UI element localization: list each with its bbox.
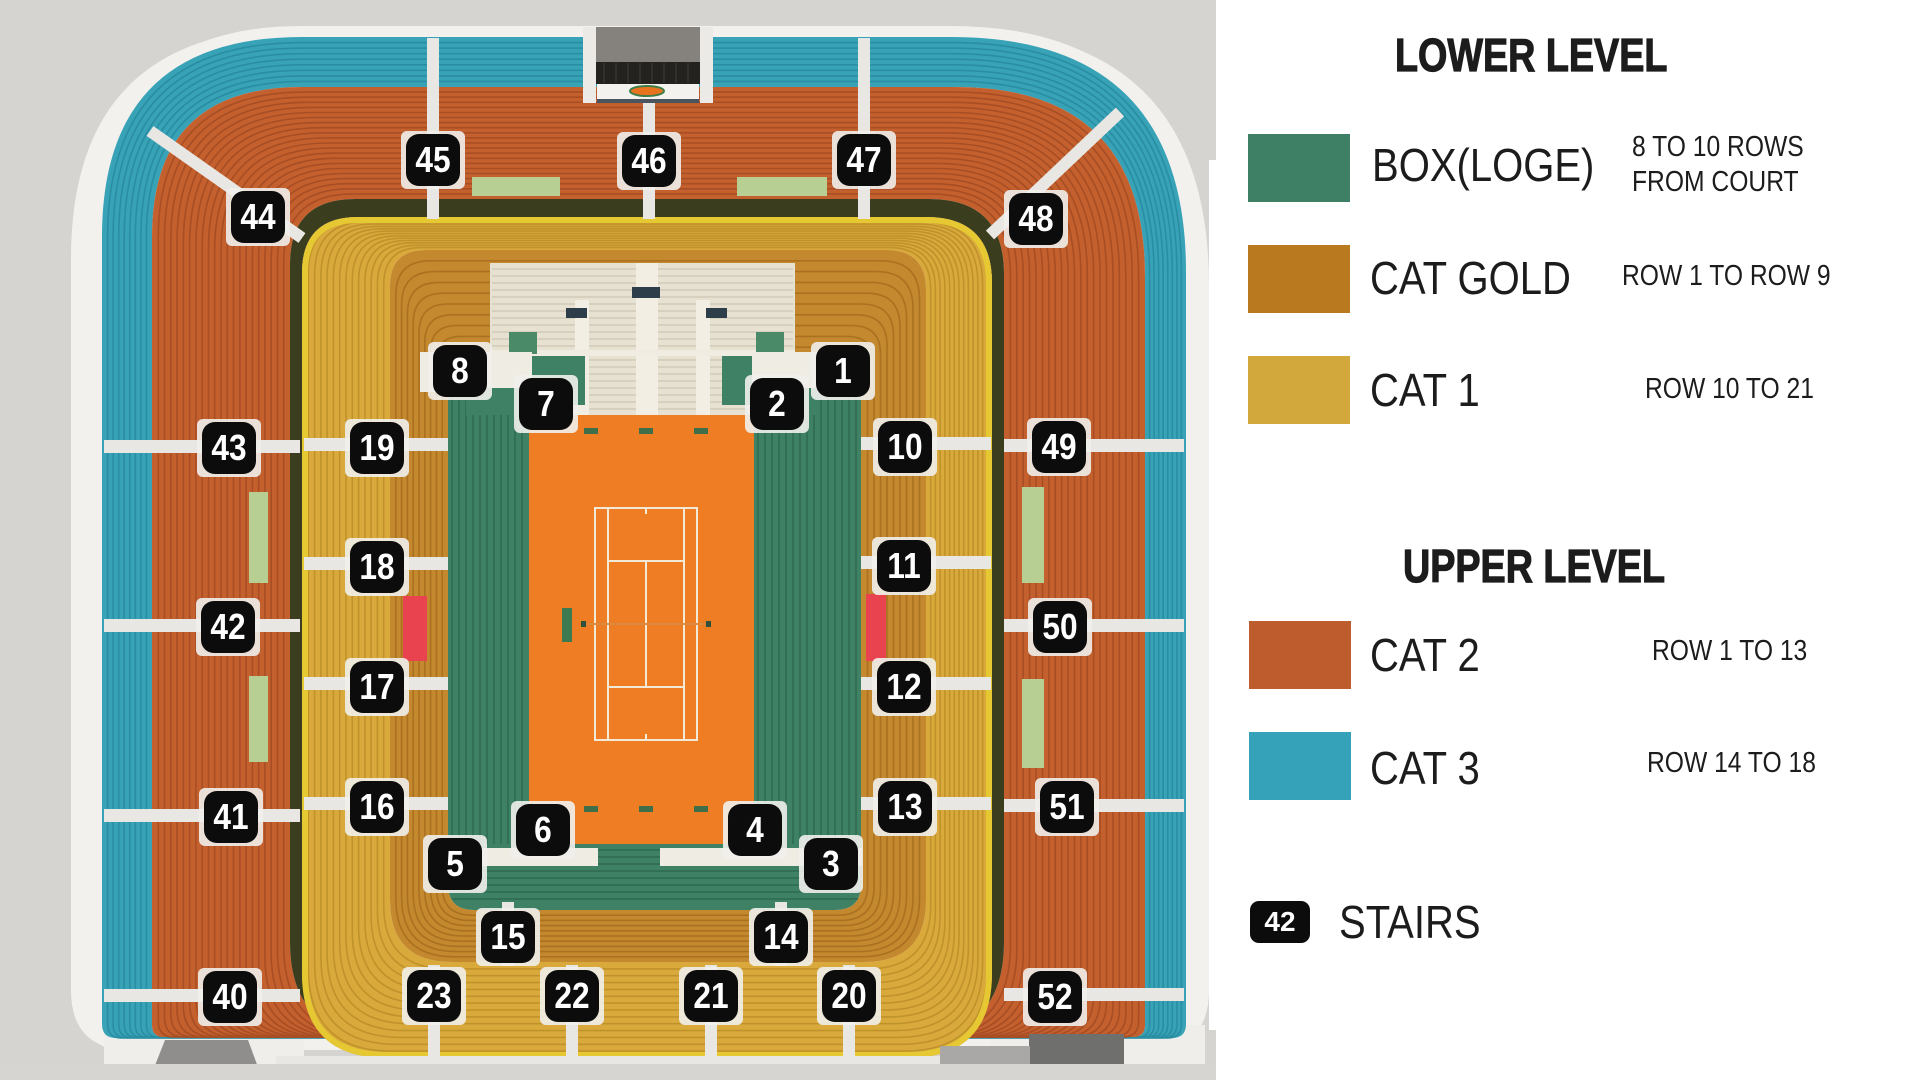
svg-text:48: 48 xyxy=(1018,199,1053,239)
svg-text:5: 5 xyxy=(446,844,464,884)
svg-text:8: 8 xyxy=(451,351,469,391)
svg-text:15: 15 xyxy=(490,917,525,957)
svg-text:40: 40 xyxy=(212,977,247,1017)
svg-text:3: 3 xyxy=(822,844,840,884)
svg-text:23: 23 xyxy=(416,976,451,1016)
svg-text:12: 12 xyxy=(886,667,921,707)
svg-text:21: 21 xyxy=(693,976,728,1016)
svg-text:2: 2 xyxy=(768,384,786,424)
svg-text:16: 16 xyxy=(359,787,394,827)
svg-text:52: 52 xyxy=(1037,977,1072,1017)
svg-text:46: 46 xyxy=(631,141,666,181)
svg-text:7: 7 xyxy=(537,384,555,424)
svg-text:6: 6 xyxy=(534,810,552,850)
svg-text:17: 17 xyxy=(359,667,394,707)
svg-text:45: 45 xyxy=(415,140,450,180)
svg-text:20: 20 xyxy=(831,976,866,1016)
svg-text:47: 47 xyxy=(846,140,881,180)
svg-text:10: 10 xyxy=(887,427,922,467)
svg-text:11: 11 xyxy=(887,546,920,586)
svg-text:42: 42 xyxy=(210,607,245,647)
svg-text:49: 49 xyxy=(1041,427,1076,467)
svg-text:51: 51 xyxy=(1049,787,1084,827)
svg-text:43: 43 xyxy=(211,428,246,468)
svg-text:1: 1 xyxy=(834,351,852,391)
svg-text:19: 19 xyxy=(359,428,394,468)
svg-text:18: 18 xyxy=(359,547,394,587)
svg-text:44: 44 xyxy=(240,197,275,237)
svg-text:14: 14 xyxy=(763,917,798,957)
svg-text:4: 4 xyxy=(746,810,764,850)
svg-text:50: 50 xyxy=(1042,607,1077,647)
svg-text:41: 41 xyxy=(213,797,248,837)
svg-text:22: 22 xyxy=(554,976,589,1016)
svg-text:13: 13 xyxy=(887,787,922,827)
